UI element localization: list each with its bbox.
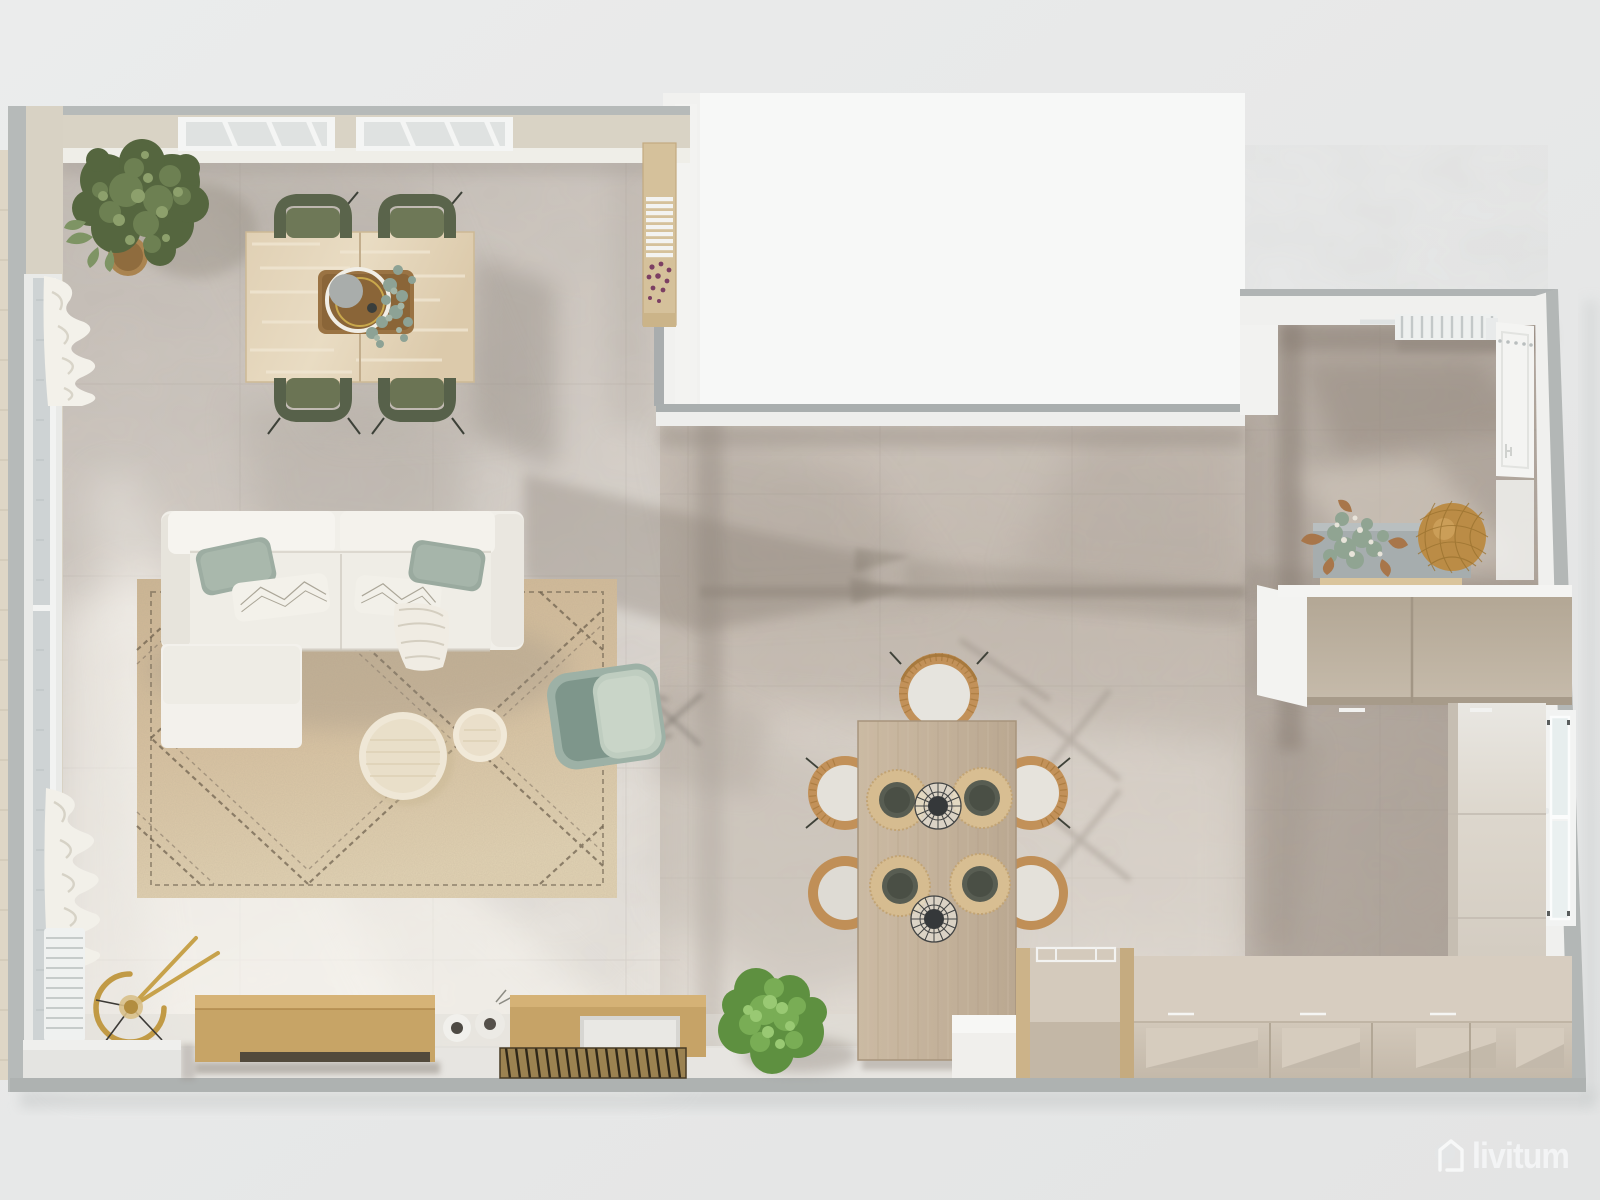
svg-text:livitum: livitum [1472,1135,1569,1176]
